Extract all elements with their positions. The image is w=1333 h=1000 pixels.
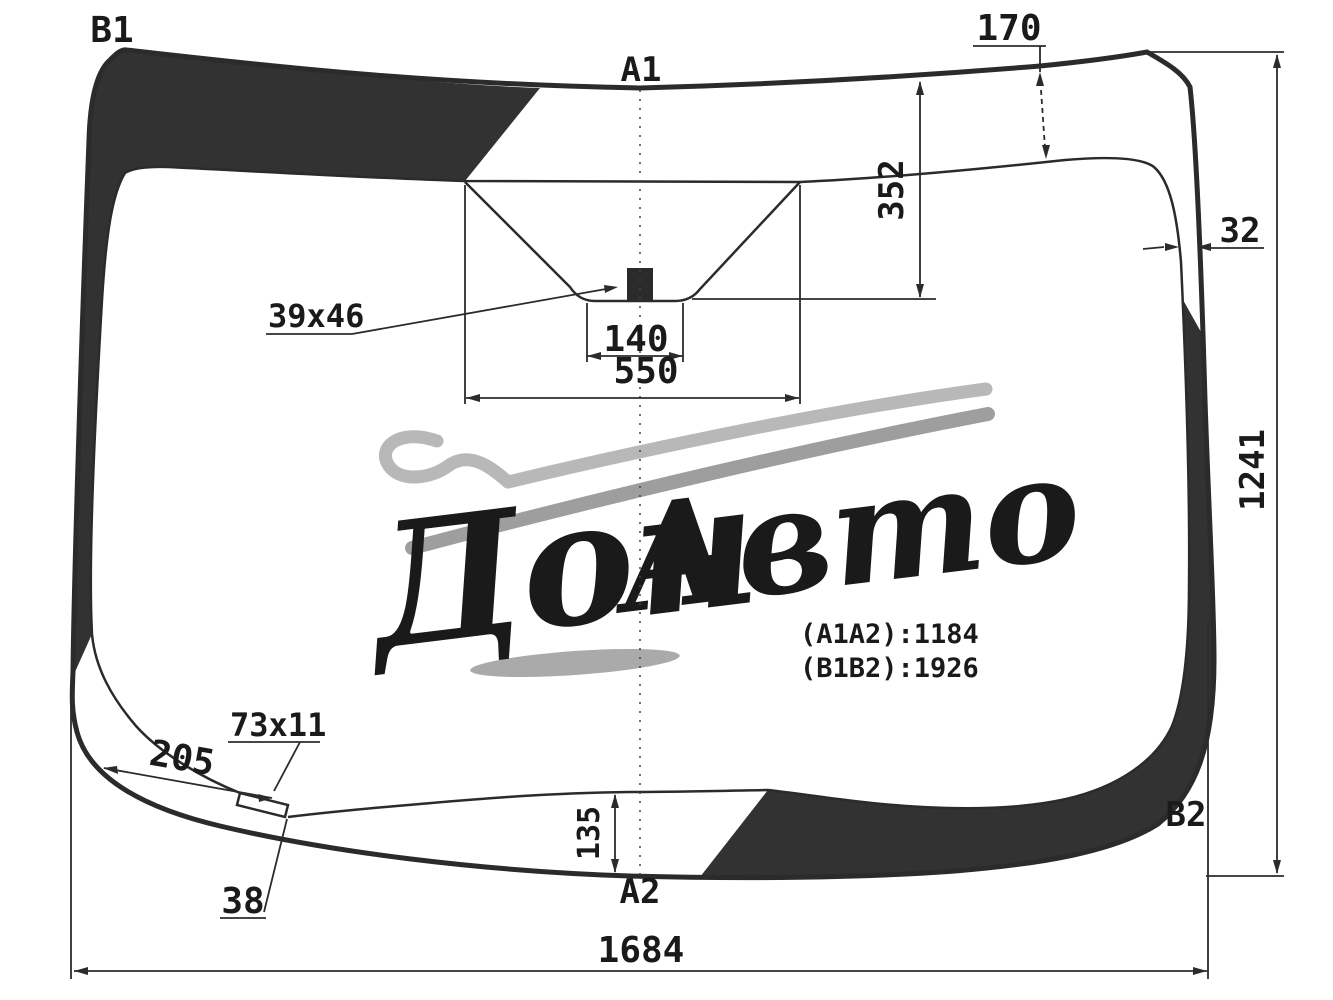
dim-1241: 1241: [1233, 429, 1273, 511]
dim-38: 38: [221, 881, 264, 922]
leader-39x46: [352, 289, 606, 334]
arrow-352-bottom: [916, 284, 924, 298]
tail-32: [1143, 247, 1164, 249]
arrow-1684-right: [1193, 967, 1207, 975]
arrow-170-bottom: [1042, 145, 1050, 159]
arrow-1241-top: [1273, 54, 1281, 68]
arrow-39x46: [604, 285, 618, 293]
windshield-diagram: Дон Авто: [0, 0, 1333, 1000]
arrow-135-bottom: [611, 859, 619, 873]
dim-1684: 1684: [598, 930, 685, 971]
label-b1: B1: [90, 10, 133, 51]
label-b2: B2: [1166, 795, 1207, 835]
measurement-a1a2: (A1A2):1184: [800, 619, 979, 650]
dim-550: 550: [613, 351, 678, 392]
leader-170-dashed: [1041, 90, 1045, 148]
dim-73x11: 73x11: [230, 706, 326, 744]
dim-170: 170: [976, 8, 1041, 49]
leader-73x11: [274, 742, 300, 791]
arrow-1684-left: [74, 967, 88, 975]
measurement-b1b2: (B1B2):1926: [800, 653, 979, 684]
mirror-button: [627, 268, 653, 301]
arrow-135-top: [611, 794, 619, 808]
arrow-550-right: [785, 394, 799, 402]
arrow-352-top: [916, 81, 924, 95]
label-a1: A1: [621, 50, 662, 90]
dim-135: 135: [572, 806, 607, 860]
label-a2: A2: [620, 872, 661, 912]
diagram-canvas: Дон Авто: [0, 0, 1333, 1000]
arrow-170-top: [1036, 72, 1044, 86]
arrow-140-left: [587, 352, 601, 360]
arrow-1241-bottom: [1273, 860, 1281, 874]
arrow-32-left: [1165, 243, 1179, 251]
dim-352: 352: [872, 159, 912, 220]
arrow-550-left: [466, 394, 480, 402]
dim-32: 32: [1220, 211, 1261, 251]
leader-38: [264, 819, 287, 912]
dim-39x46: 39x46: [268, 297, 364, 335]
